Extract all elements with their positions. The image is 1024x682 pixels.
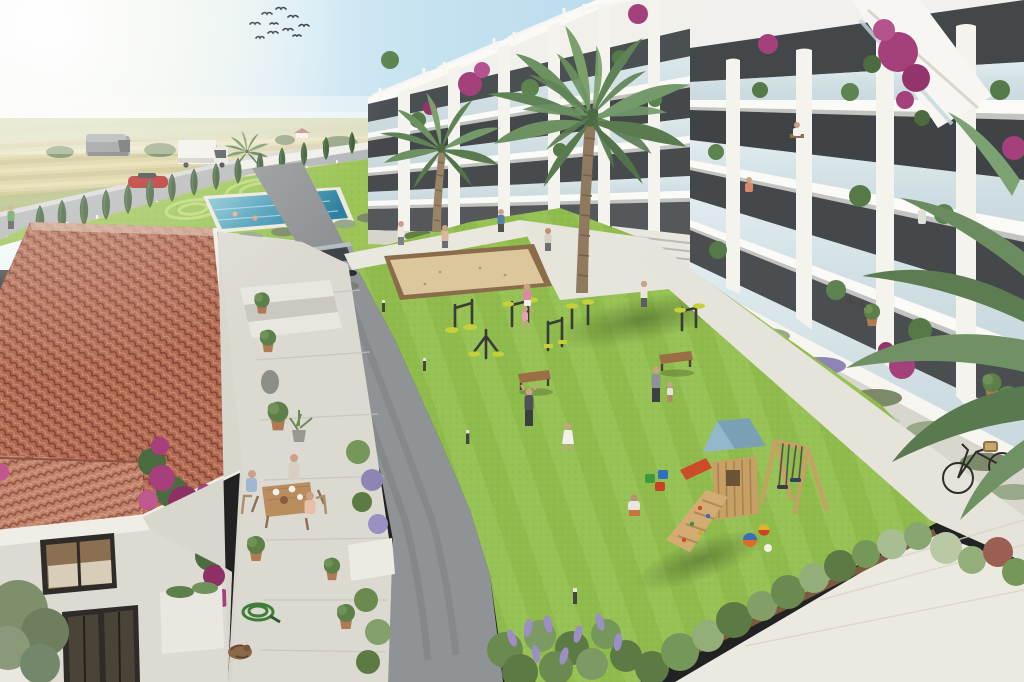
aerial-render-image — [0, 0, 1024, 682]
wall-planter — [160, 582, 224, 654]
french-doors — [62, 605, 140, 682]
garden-sculpture — [261, 370, 279, 394]
low-white-wall — [348, 538, 395, 581]
person-walking — [641, 281, 648, 307]
person-walking — [398, 221, 405, 245]
window — [40, 533, 117, 595]
person-walking — [545, 228, 552, 251]
person-dining — [305, 492, 316, 514]
render-canvas — [0, 0, 1024, 682]
person-standing — [289, 454, 300, 480]
sleeping-cat — [228, 645, 252, 660]
person-walking — [498, 209, 505, 232]
person-walking — [442, 225, 449, 248]
person-seated — [745, 177, 753, 192]
